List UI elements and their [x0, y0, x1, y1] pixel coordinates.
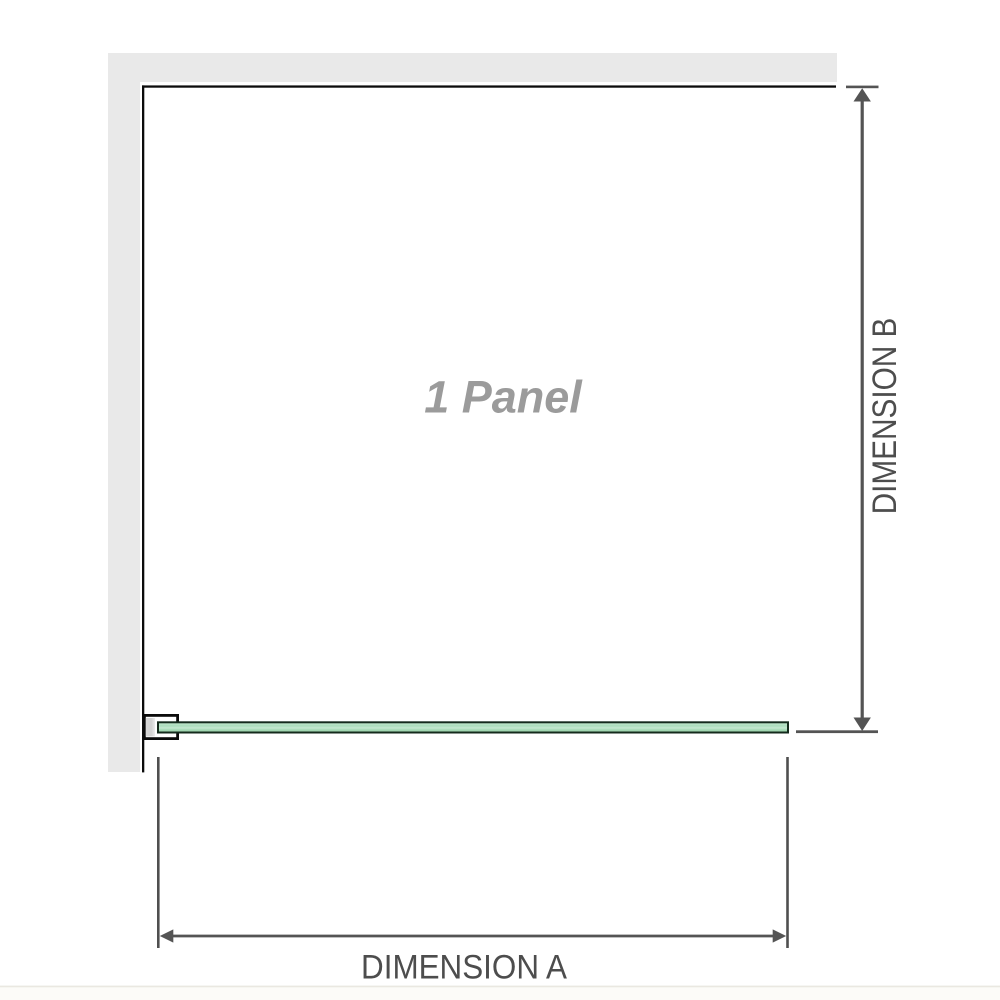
svg-text:DIMENSION A: DIMENSION A: [361, 947, 567, 986]
svg-text:DIMENSION B: DIMENSION B: [865, 318, 903, 515]
svg-text:1 Panel: 1 Panel: [424, 372, 583, 423]
